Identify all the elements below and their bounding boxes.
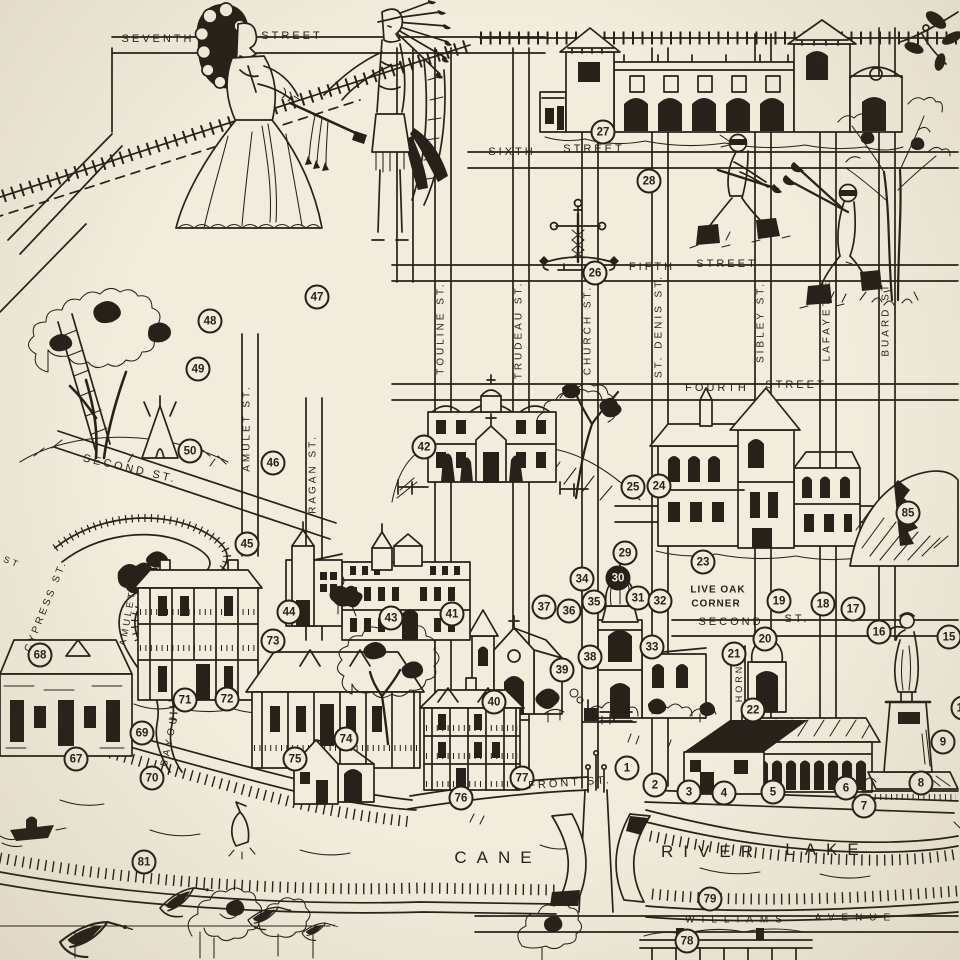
map-marker-21: 21 [722, 642, 747, 667]
map-label: FRONT ST. [528, 774, 612, 792]
map-marker-14: 14 [951, 696, 960, 721]
map-label: ST [2, 554, 22, 570]
map-label: RAGAN ST. [308, 434, 319, 514]
map-label: BAYOU [159, 712, 181, 767]
map-marker-73: 73 [261, 629, 286, 654]
map-label: BUARD ST. [881, 277, 892, 356]
map-marker-74: 74 [334, 727, 359, 752]
map-marker-9: 9 [931, 730, 956, 755]
pictorial-city-map: 1234567891415161718192021222324252627282… [0, 0, 960, 960]
map-marker-25: 25 [621, 475, 646, 500]
map-marker-30: 30 [606, 566, 631, 591]
map-label: LIVE OAK [690, 585, 745, 596]
map-label: STREET [696, 258, 757, 270]
map-marker-33: 33 [640, 635, 665, 660]
map-marker-41: 41 [440, 602, 465, 627]
map-label: STREET [563, 143, 624, 155]
map-label: SECOND [698, 616, 763, 628]
map-label: STREET [765, 379, 826, 391]
map-marker-50: 50 [178, 439, 203, 464]
map-label: SECOND ST. [82, 452, 178, 485]
map-marker-28: 28 [637, 169, 662, 194]
map-marker-78: 78 [675, 929, 700, 954]
map-label: AMULET [118, 589, 139, 647]
map-marker-46: 46 [261, 451, 286, 476]
map-marker-67: 67 [64, 747, 89, 772]
map-marker-71: 71 [173, 688, 198, 713]
map-marker-7: 7 [852, 794, 877, 819]
map-marker-39: 39 [550, 658, 575, 683]
map-marker-38: 38 [578, 645, 603, 670]
map-marker-43: 43 [379, 606, 404, 631]
map-label: LAFAYETTE [822, 279, 833, 362]
map-marker-29: 29 [613, 541, 638, 566]
map-label: LAKE [785, 840, 868, 860]
map-marker-15: 15 [937, 625, 960, 650]
map-label: CANE [454, 848, 541, 868]
map-label: ST. DENIS ST. [654, 274, 665, 378]
map-marker-20: 20 [753, 627, 778, 652]
map-marker-18: 18 [811, 592, 836, 617]
map-label: CHURCH ST. [583, 285, 594, 376]
map-marker-3: 3 [677, 780, 702, 805]
map-marker-32: 32 [648, 589, 673, 614]
map-marker-69: 69 [130, 721, 155, 746]
map-label: FOURTH [685, 382, 749, 394]
map-marker-70: 70 [140, 766, 165, 791]
map-marker-47: 47 [305, 285, 330, 310]
map-marker-75: 75 [283, 747, 308, 772]
map-marker-26: 26 [583, 261, 608, 286]
map-marker-22: 22 [741, 698, 766, 723]
map-marker-8: 8 [909, 771, 934, 796]
map-marker-34: 34 [570, 567, 595, 592]
map-marker-76: 76 [449, 786, 474, 811]
map-label: TRUDEAU ST. [514, 281, 525, 380]
map-label: ST. [785, 613, 810, 625]
map-marker-23: 23 [691, 550, 716, 575]
map-marker-37: 37 [532, 595, 557, 620]
map-marker-42: 42 [412, 435, 437, 460]
map-marker-19: 19 [767, 589, 792, 614]
overlay-layer: 1234567891415161718192021222324252627282… [0, 0, 960, 960]
map-marker-45: 45 [235, 532, 260, 557]
map-label: SEVENTH [122, 33, 195, 45]
map-marker-17: 17 [841, 597, 866, 622]
map-marker-44: 44 [277, 600, 302, 625]
map-marker-85: 85 [896, 501, 921, 526]
map-label: STREET [261, 30, 322, 42]
map-label: SIXTH [488, 146, 535, 158]
map-marker-79: 79 [698, 887, 723, 912]
map-marker-81: 81 [132, 850, 157, 875]
map-marker-36: 36 [557, 599, 582, 624]
map-marker-16: 16 [867, 620, 892, 645]
map-label: HORN [734, 664, 744, 703]
map-marker-49: 49 [186, 357, 211, 382]
map-label: TOULINE ST. [436, 281, 447, 374]
map-marker-24: 24 [647, 474, 672, 499]
map-marker-48: 48 [198, 309, 223, 334]
map-label: CORNER [691, 599, 740, 610]
map-marker-27: 27 [591, 120, 616, 145]
map-marker-5: 5 [761, 780, 786, 805]
map-label: WILLIAMS [685, 915, 789, 926]
map-label: AMULET ST. [242, 384, 253, 472]
map-marker-35: 35 [582, 590, 607, 615]
map-marker-40: 40 [482, 690, 507, 715]
map-marker-72: 72 [215, 687, 240, 712]
map-marker-4: 4 [712, 781, 737, 806]
map-marker-2: 2 [643, 773, 668, 798]
map-label: AVENUE [815, 913, 897, 924]
map-label: RIVER [661, 842, 763, 862]
map-label: CYPRESS ST. [23, 558, 70, 653]
map-label: FIFTH [629, 261, 675, 273]
map-label: SIBLEY ST. [756, 281, 767, 363]
map-marker-1: 1 [615, 756, 640, 781]
